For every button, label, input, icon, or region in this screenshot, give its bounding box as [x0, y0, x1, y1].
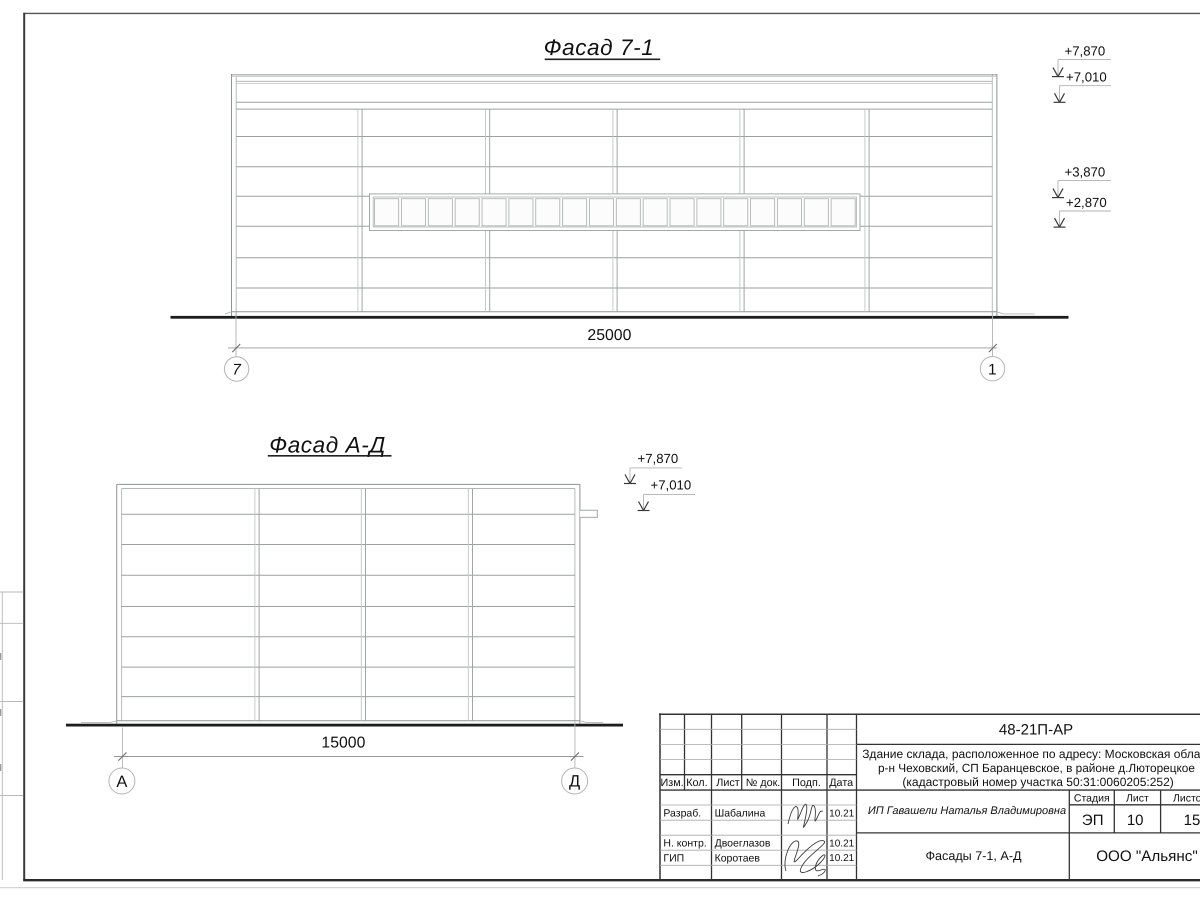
svg-text:Д: Д: [569, 773, 580, 791]
svg-text:ЭП: ЭП: [1082, 812, 1104, 829]
svg-text:Фасад А-Д: Фасад А-Д: [269, 432, 386, 457]
svg-text:Подп.: Подп.: [792, 777, 821, 789]
svg-text:10: 10: [1127, 812, 1144, 829]
svg-text:Дата: Дата: [829, 777, 853, 789]
svg-text:Н. контр.: Н. контр.: [663, 838, 706, 850]
svg-text:+7,870: +7,870: [638, 451, 679, 466]
svg-text:Кол.: Кол.: [686, 777, 707, 789]
svg-text:+7,010: +7,010: [1066, 70, 1107, 85]
svg-text:Здание склада, расположенное п: Здание склада, расположенное по адресу: …: [862, 747, 1200, 761]
svg-text:25000: 25000: [587, 327, 631, 344]
svg-text:(кадастровый номер участка 50:: (кадастровый номер участка 50:31:0060205…: [902, 775, 1173, 789]
svg-text:ООО "Альянс": ООО "Альянс": [1096, 848, 1198, 865]
svg-text:Коротаев: Коротаев: [715, 852, 761, 864]
svg-text:Изм.: Изм.: [661, 777, 684, 789]
svg-text:48-21П-АР: 48-21П-АР: [999, 721, 1073, 738]
svg-text:Лист: Лист: [716, 777, 740, 789]
svg-text:15000: 15000: [321, 735, 365, 752]
svg-text:Листов: Листов: [1173, 792, 1200, 804]
svg-text:+3,870: +3,870: [1065, 165, 1106, 180]
svg-text:ГИП: ГИП: [663, 852, 684, 864]
svg-text:Шабалина: Шабалина: [715, 808, 766, 820]
svg-text:р-н Чеховский, СП Баранцевское: р-н Чеховский, СП Баранцевское, в районе…: [878, 761, 1195, 775]
svg-text:+7,010: +7,010: [651, 477, 692, 492]
svg-text:Двоеглазов: Двоеглазов: [715, 838, 771, 850]
svg-text:10.21: 10.21: [829, 838, 854, 849]
svg-text:Разраб.: Разраб.: [663, 807, 701, 819]
svg-text:Фасады 7-1, А-Д: Фасады 7-1, А-Д: [925, 849, 1022, 863]
svg-text:№ док.: № док.: [746, 777, 781, 789]
svg-text:+2,870: +2,870: [1066, 195, 1107, 210]
svg-text:7: 7: [232, 362, 242, 379]
svg-text:Стадия: Стадия: [1074, 792, 1110, 804]
svg-text:Лист: Лист: [1126, 792, 1149, 804]
svg-text:Фасад 7-1: Фасад 7-1: [544, 35, 655, 60]
svg-text:15: 15: [1184, 812, 1200, 829]
svg-text:1: 1: [988, 361, 997, 378]
svg-text:+7,870: +7,870: [1065, 43, 1106, 58]
svg-text:ИП Гавашели Наталья Владимиров: ИП Гавашели Наталья Владимировна: [868, 805, 1066, 817]
svg-text:10.21: 10.21: [829, 853, 854, 864]
svg-text:10.21: 10.21: [829, 808, 854, 819]
svg-text:А: А: [116, 773, 127, 791]
